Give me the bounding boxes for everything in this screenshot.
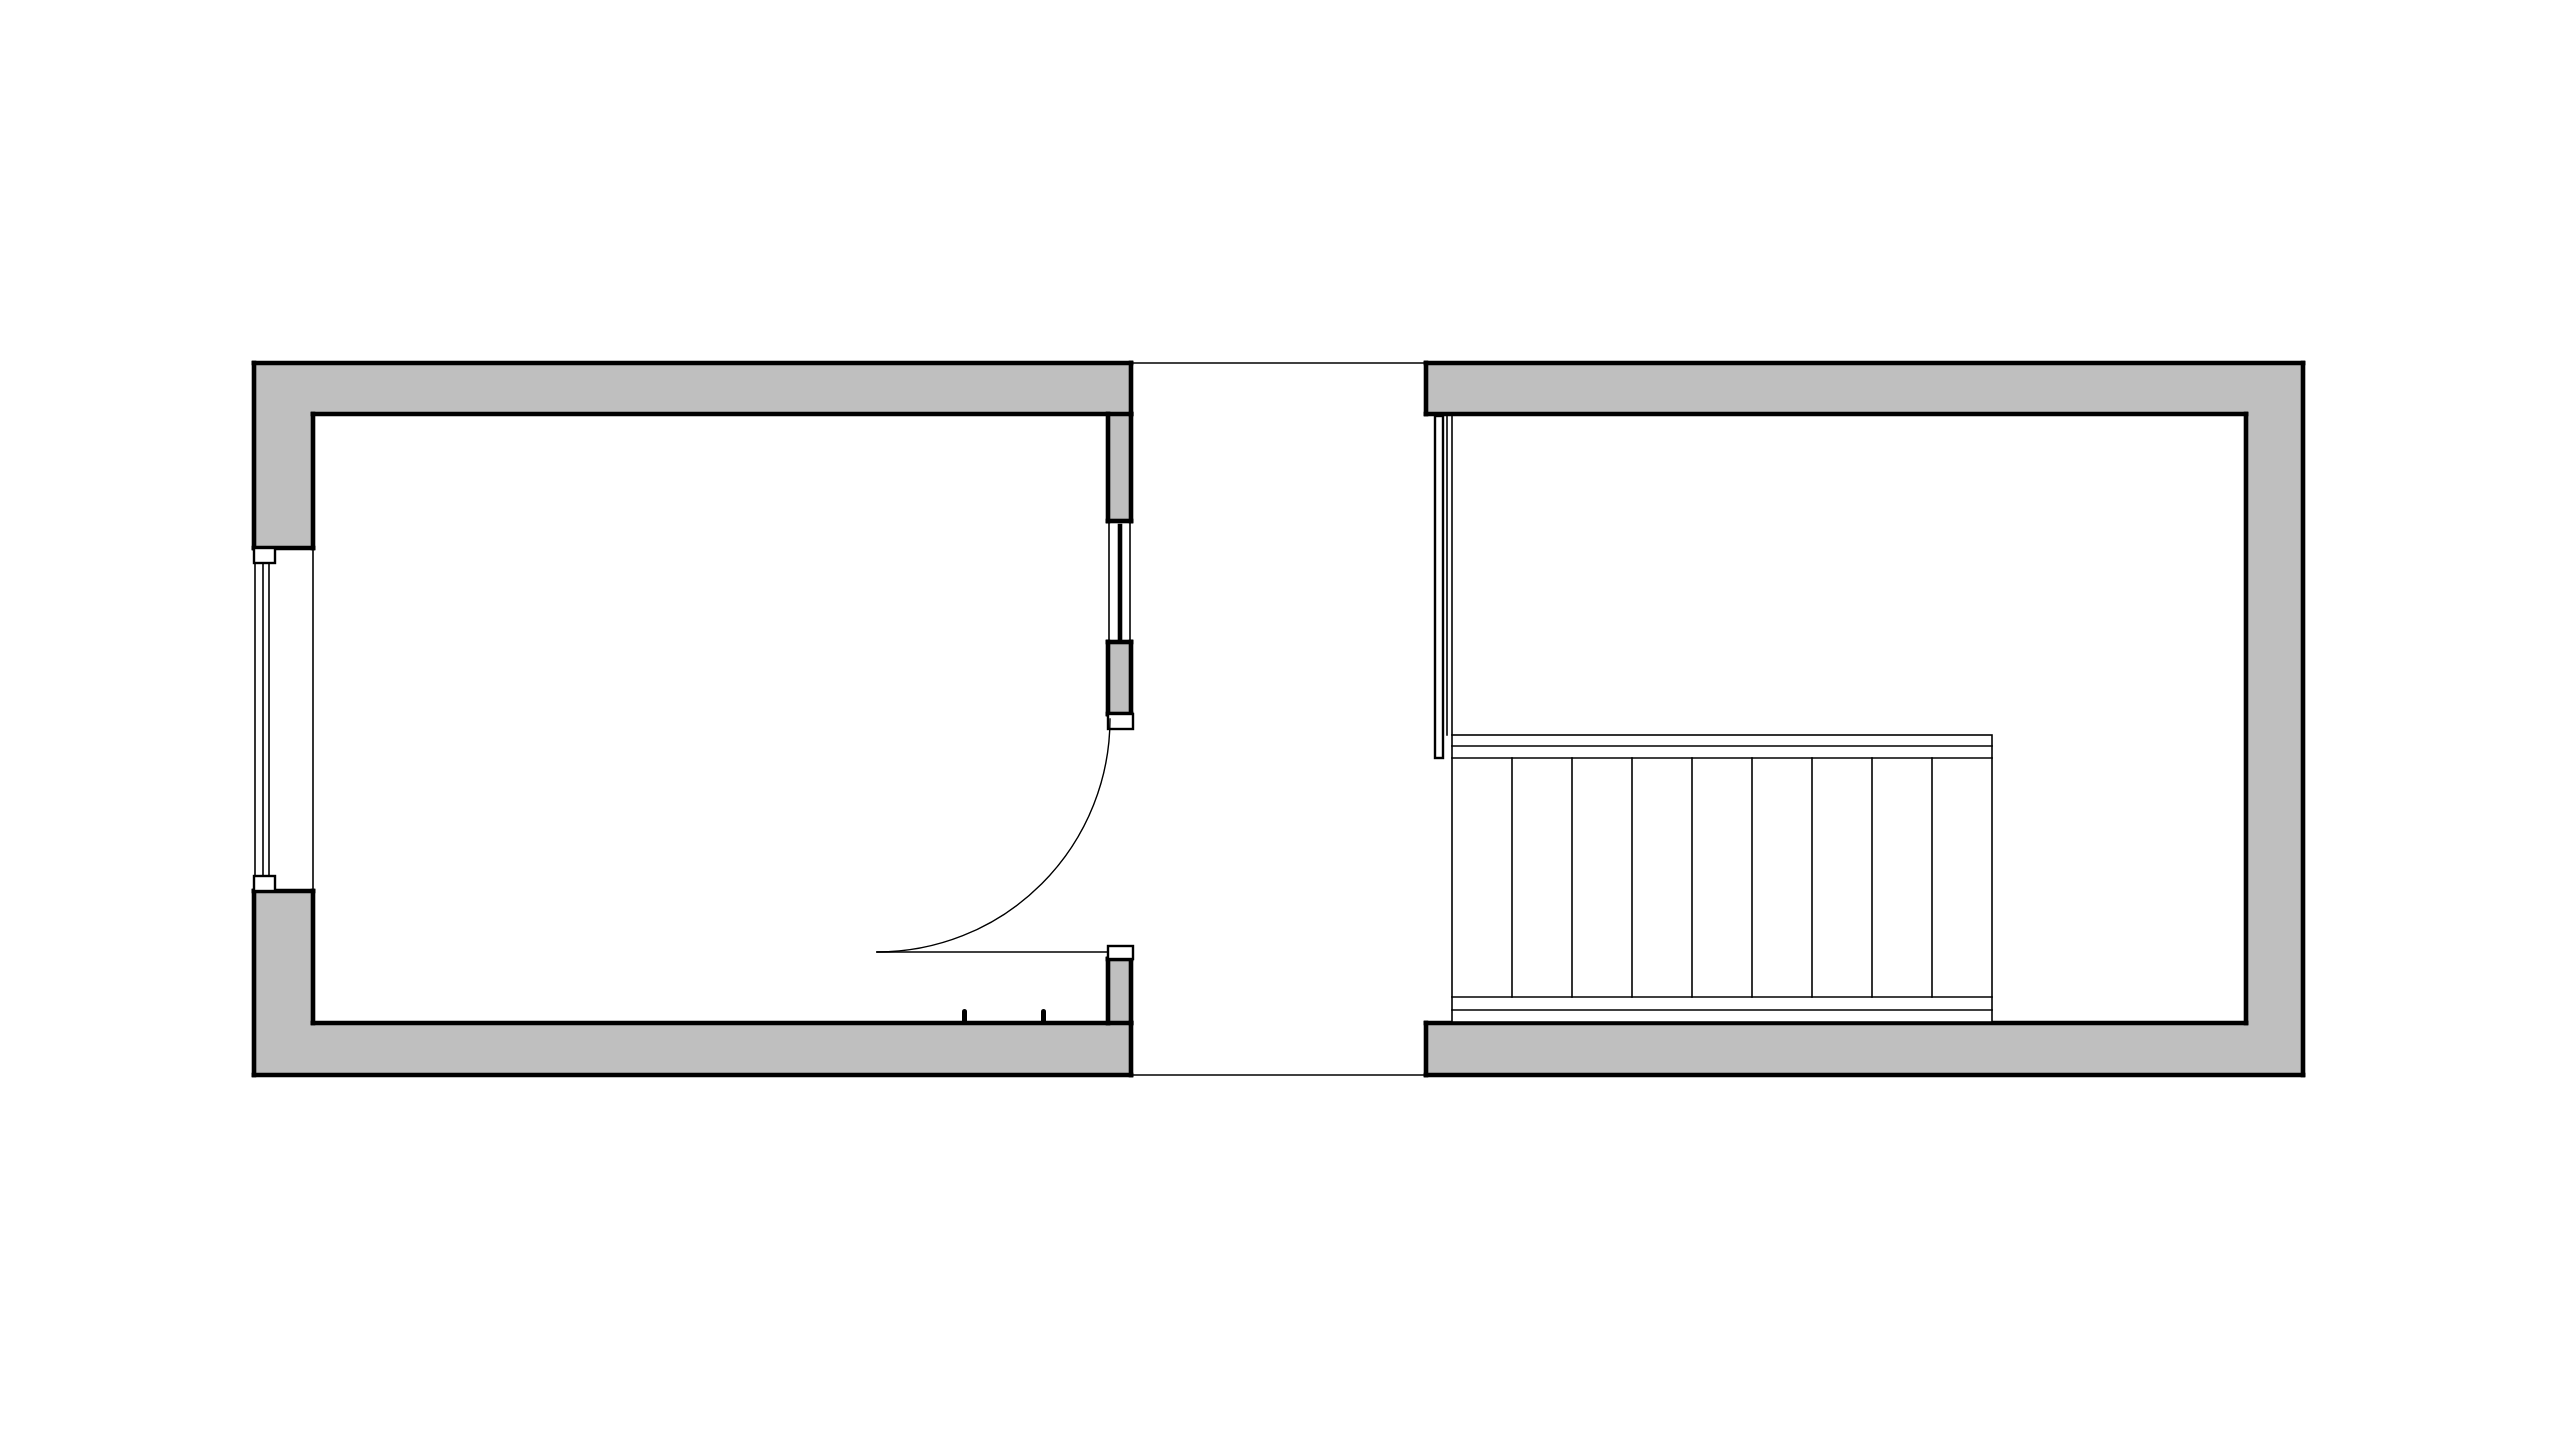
left-room-bottom-wall-fill [254,1023,1131,1075]
stair-railing [1435,416,1443,758]
right-room-right-wall-fill [2246,363,2303,1075]
window-frame-bottom-box [254,876,275,891]
door-stop-tick-a [962,1009,967,1023]
left-room-top-wall-fill [254,363,1131,414]
right-room-top-wall-fill [1426,363,2303,414]
left-room-left-wall-upper-fill [254,363,313,548]
partition-wall-middle-fill [1108,642,1131,714]
door-swing-arc [877,719,1110,952]
partition-wall-lower-fill [1108,959,1131,1023]
stair-block-outline [1452,735,1992,1022]
floor-plan [0,0,2560,1437]
door-jamb-top-box [1108,714,1133,729]
door-stop-tick-b [1041,1009,1046,1023]
door-jamb-bottom-box [1108,946,1133,959]
floor-plan-svg [0,0,2560,1437]
right-room-bottom-wall-fill [1426,1023,2303,1075]
partition-wall-upper-fill [1108,414,1131,521]
window-frame-top-box [254,548,275,563]
